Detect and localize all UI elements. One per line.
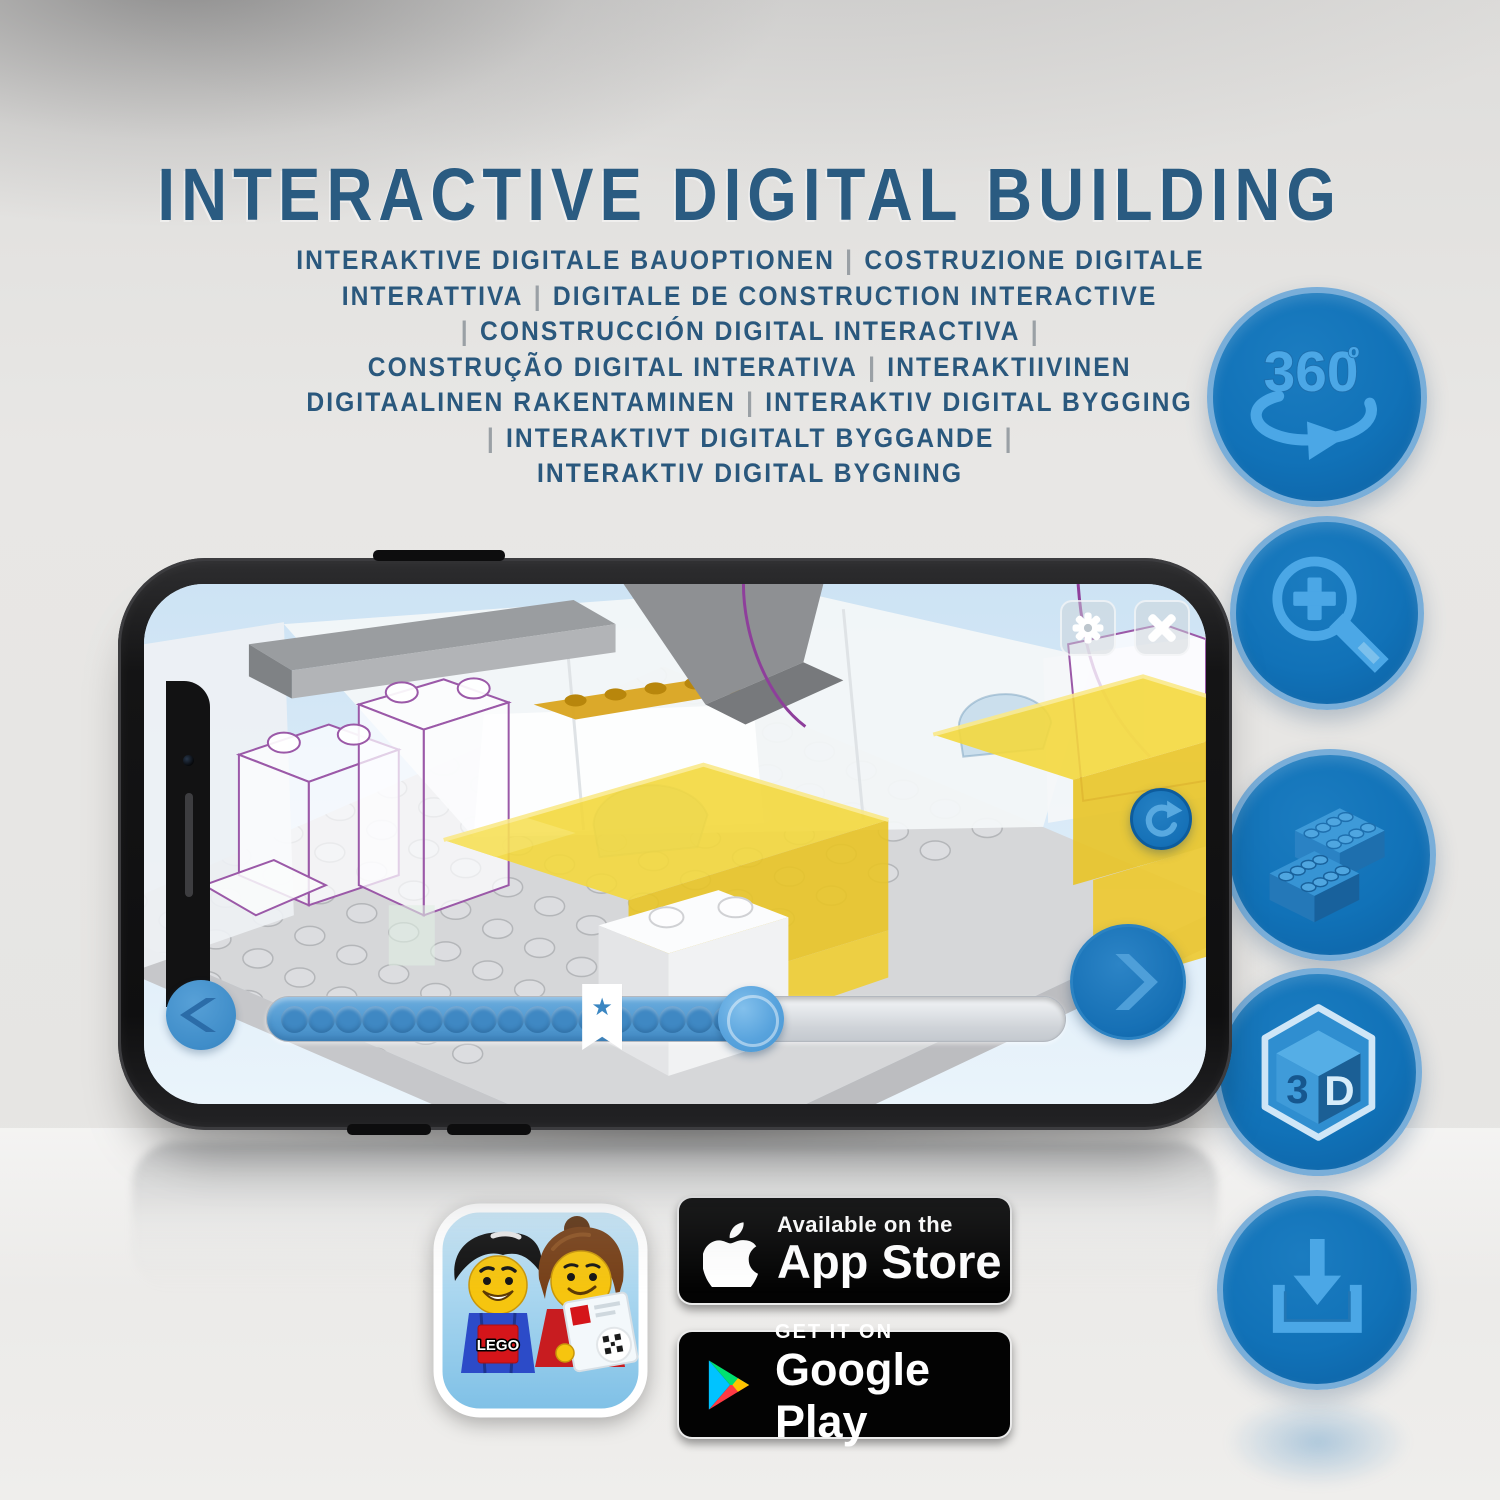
- cube-3d-art: 3 D: [1242, 996, 1395, 1149]
- zoom-in-icon: [1230, 516, 1424, 710]
- google-play-badge[interactable]: GET IT ON Google Play: [677, 1330, 1012, 1439]
- progress-dot: [389, 1006, 416, 1033]
- progress-dot: [659, 1006, 686, 1033]
- phone-mockup: ★: [118, 558, 1232, 1130]
- gear-icon: [1068, 608, 1108, 648]
- phone-volume-button-2: [447, 1124, 531, 1135]
- close-button[interactable]: [1134, 600, 1190, 656]
- build-progress-bar[interactable]: ★: [266, 996, 1066, 1042]
- phone-notch: [166, 681, 210, 1007]
- phone-reflection: [132, 1142, 1218, 1292]
- subtitle-line: |INTERAKTIVT DIGITALT BYGGANDE|: [200, 421, 1300, 457]
- download-art: [1244, 1217, 1391, 1364]
- subtitle-line: DIGITAALINEN RAKENTAMINEN|INTERAKTIV DIG…: [200, 385, 1300, 421]
- phone-volume-button-1: [347, 1124, 431, 1135]
- progress-dot: [281, 1006, 308, 1033]
- chevron-left-icon: [166, 980, 236, 1050]
- progress-dot: [551, 1006, 578, 1033]
- progress-dot: [308, 1006, 335, 1033]
- progress-thumb[interactable]: [718, 986, 784, 1052]
- rotate-view-button[interactable]: [1130, 788, 1192, 850]
- brick-art: [1252, 777, 1408, 933]
- page-title: INTERACTIVE DIGITAL BUILDING: [0, 152, 1500, 237]
- phone-power-button: [373, 550, 505, 561]
- progress-dot: [497, 1006, 524, 1033]
- subtitle-line: |CONSTRUCCIÓN DIGITAL INTERACTIVA|: [200, 314, 1300, 350]
- progress-dot: [686, 1006, 713, 1033]
- brick-icon: [1224, 749, 1436, 961]
- subtitle-line: CONSTRUÇÃO DIGITAL INTERATIVA|INTERAKTII…: [200, 350, 1300, 386]
- google-play-badge-line1: GET IT ON: [775, 1321, 1010, 1344]
- earpiece-speaker: [185, 793, 193, 897]
- subtitle: INTERAKTIVE DIGITALE BAUOPTIONEN|COSTRUZ…: [200, 243, 1300, 492]
- progress-dot: [524, 1006, 551, 1033]
- front-camera: [183, 755, 194, 766]
- rotate-arrow-icon: [1138, 796, 1184, 842]
- progress-fill: [267, 997, 754, 1041]
- instruction-card: [563, 1292, 638, 1372]
- download-icon: [1217, 1190, 1417, 1390]
- phone-screen: ★: [144, 584, 1206, 1104]
- lego-logo-text: LEGO: [477, 1337, 520, 1354]
- progress-dot: [443, 1006, 470, 1033]
- subtitle-line: INTERAKTIV DIGITAL BYGNING: [200, 456, 1300, 492]
- google-play-icon: [701, 1354, 757, 1416]
- close-icon: [1143, 609, 1181, 647]
- progress-dot: [416, 1006, 443, 1033]
- svg-text:3: 3: [1286, 1067, 1308, 1112]
- progress-dot: [632, 1006, 659, 1033]
- progress-dot: [335, 1006, 362, 1033]
- previous-step-button[interactable]: [166, 980, 236, 1050]
- star-icon: ★: [591, 996, 613, 1050]
- settings-button[interactable]: [1060, 600, 1116, 656]
- progress-dot: [470, 1006, 497, 1033]
- svg-text:º: º: [1348, 342, 1359, 376]
- zoom-in-art: [1256, 542, 1398, 684]
- cube-3d-icon: 3 D: [1214, 968, 1422, 1176]
- svg-text:D: D: [1324, 1066, 1354, 1113]
- icon-rail-reflection: [1226, 1396, 1410, 1488]
- next-step-button[interactable]: [1070, 924, 1186, 1040]
- rotate-360-icon: 360 º: [1207, 287, 1427, 507]
- rotate-360-art: 360 º: [1236, 316, 1398, 478]
- google-play-badge-line2: Google Play: [775, 1344, 1010, 1448]
- chevron-right-icon: [1073, 925, 1183, 1039]
- subtitle-line: INTERAKTIVE DIGITALE BAUOPTIONEN|COSTRUZ…: [200, 243, 1300, 279]
- subtitle-line: INTERATTIVA|DIGITALE DE CONSTRUCTION INT…: [200, 279, 1300, 315]
- progress-dot: [362, 1006, 389, 1033]
